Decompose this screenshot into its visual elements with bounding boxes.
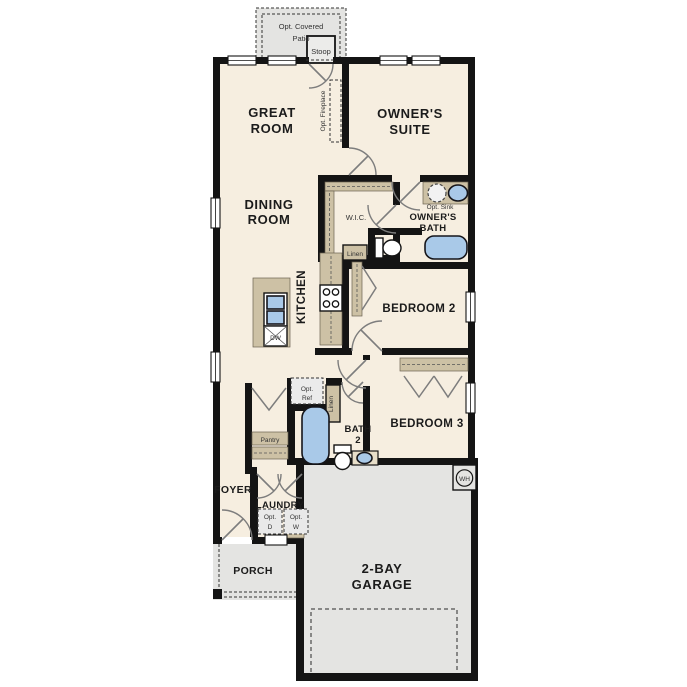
opt-dryer-label-line1: Opt. xyxy=(264,514,276,521)
window xyxy=(380,56,407,65)
dishwasher-label: DW xyxy=(270,335,282,342)
window xyxy=(228,56,256,65)
bath2-label-line2: 2 xyxy=(355,435,361,446)
linen-owners-label: Linen xyxy=(347,251,363,258)
cooktop xyxy=(320,285,342,311)
owners-bath-tub-icon xyxy=(425,236,467,259)
owners-suite-label-line2: SUITE xyxy=(389,122,430,137)
island-sink xyxy=(267,296,284,309)
bedroom2-label: BEDROOM 2 xyxy=(382,303,455,315)
opt-dryer-label-line2: D xyxy=(268,524,273,531)
patio-label-line1: Opt. Covered xyxy=(279,22,324,31)
bath2-tub-icon xyxy=(302,407,329,464)
great-owners-divider xyxy=(342,64,349,148)
porch-label: PORCH xyxy=(233,565,272,577)
opt-washer-label-line2: W xyxy=(293,524,300,531)
floor-plan: Opt. Covered Patio Stoop GREAT ROOM OWNE… xyxy=(0,0,687,687)
laundry-exterior-door xyxy=(265,535,287,545)
bedroom3-closet-shelf xyxy=(400,358,468,371)
patio-label-line2: Patio xyxy=(292,34,309,43)
floor-plan-svg: Opt. Covered Patio Stoop GREAT ROOM OWNE… xyxy=(0,0,687,687)
window xyxy=(466,292,475,322)
owners-bath-toilet-icon xyxy=(375,238,401,258)
pantry-label: Pantry xyxy=(261,437,281,444)
window xyxy=(466,383,475,413)
opt-washer-label-line1: Opt. xyxy=(290,514,302,521)
garage-label-line1: 2-BAY xyxy=(362,561,403,576)
kitchen-label: KITCHEN xyxy=(296,270,308,324)
great-room-label-line2: ROOM xyxy=(251,121,294,136)
foyer-label: FOYER xyxy=(214,484,252,496)
porch-post xyxy=(213,589,222,599)
bath2-label-line1: BATH xyxy=(345,424,372,435)
island-sink xyxy=(267,311,284,324)
bath2-toilet-icon xyxy=(334,445,351,470)
dining-room-label-line1: DINING xyxy=(244,197,293,212)
opt-ref-label-line2: Ref xyxy=(302,395,312,402)
stoop-label: Stoop xyxy=(311,47,331,56)
opt-ref-label-line1: Opt. xyxy=(301,386,313,393)
window xyxy=(412,56,440,65)
bath2-vanity-sink-icon xyxy=(352,451,378,465)
window xyxy=(268,56,296,65)
opt-fireplace-label: Opt. Fireplace xyxy=(320,90,327,131)
optional-sink-icon xyxy=(428,184,446,202)
window xyxy=(211,198,220,228)
water-heater-label: WH xyxy=(459,476,470,483)
wic-label: W.I.C. xyxy=(346,213,366,222)
dining-room-label-line2: ROOM xyxy=(248,212,291,227)
garage-label-line2: GARAGE xyxy=(352,577,413,592)
opt-sink-label: Opt. Sink xyxy=(427,204,454,211)
bedroom2-closet-shelf xyxy=(352,262,362,316)
window xyxy=(211,352,220,382)
owners-bath-label-line2: BATH xyxy=(420,223,447,234)
bedroom3-label: BEDROOM 3 xyxy=(390,418,463,430)
owners-bath-label-line1: OWNER'S xyxy=(409,212,456,223)
linen-hall-label: Linen xyxy=(328,396,335,412)
owners-suite-label-line1: OWNER'S xyxy=(377,106,443,121)
great-room-label-line1: GREAT xyxy=(248,105,296,120)
owners-bath-sink-icon xyxy=(449,185,468,201)
